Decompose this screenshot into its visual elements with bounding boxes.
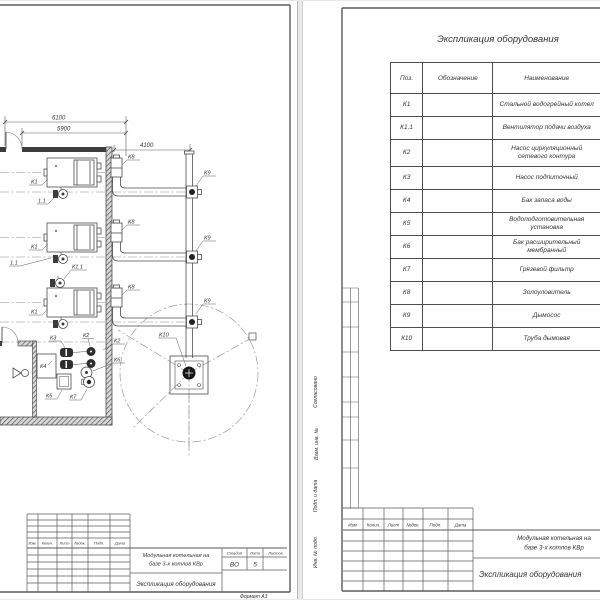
plan-drawing: 6100 5900 4100 [0, 1, 298, 599]
cell-pos: К2 [391, 140, 423, 167]
table-row: К5Водоподготовительная установка [391, 213, 600, 236]
label-ash-1: К8 [128, 155, 135, 161]
cell-name: Бак запаса воды [493, 190, 600, 213]
guy-anchor [249, 333, 256, 340]
table-row: К8Золоуловитель [391, 282, 600, 305]
stamp-col-ndok: №док. [74, 542, 85, 546]
cell-pos: К1 [391, 94, 423, 117]
stamp-col-podp: Подп. [94, 542, 104, 546]
format-note: Формат А3 [240, 594, 268, 599]
flue-run-2 [111, 220, 202, 263]
cell-designation [423, 236, 493, 259]
label-fan-3: К1.1 [72, 265, 83, 271]
label-ash-3: К8 [128, 285, 135, 291]
dim-overall-width: 6100 [52, 116, 66, 122]
table-row: К4Бак запаса воды [391, 190, 600, 213]
cell-designation [423, 259, 493, 282]
cell-pos: К6 [391, 236, 423, 259]
table-row: К7Грязевой фильтр [391, 259, 600, 282]
label-ash-2: К8 [128, 220, 135, 226]
stamp-col-data: Дата [114, 542, 125, 546]
doc-title: Экспликация оборудования [136, 581, 216, 588]
margin-label-sign-date: Подп. и дата [313, 480, 319, 513]
table-row: К2Насос циркуляционный сетевого контура [391, 140, 600, 167]
cell-designation [423, 190, 493, 213]
cell-name: Вентилятор подачи воздуха [493, 117, 600, 140]
cell-designation [423, 282, 493, 305]
cell-pos: К1.1 [391, 117, 423, 140]
sheet-number: 5 [253, 562, 257, 569]
boiler-2-fan-symbol [53, 252, 68, 264]
label-feed-pump: К3 [50, 336, 57, 342]
label-boiler-2: К1 [31, 245, 38, 251]
label-network-pump-2: К2 [114, 339, 120, 345]
stamp-col-list: Лист [387, 523, 400, 528]
cell-pos: К10 [391, 328, 423, 351]
project-title-line1: Модульная котельная на [143, 553, 210, 559]
cell-pos: К8 [391, 282, 423, 305]
cell-name: Дымосос [493, 305, 600, 328]
label-chimney: К10 [159, 333, 170, 339]
cell-pos: К4 [391, 190, 423, 213]
label-fan-2: 1.1 [10, 261, 18, 267]
project-title-line1: Модульная котельная на [517, 535, 591, 542]
table-row: К10Труба дымовая [391, 328, 600, 351]
spare-fan-symbol [53, 317, 68, 329]
table-header-row: Поз. Обозначение Наименование [391, 63, 600, 94]
stage-label: Стадия [227, 551, 243, 556]
dim-inner-width: 5900 [57, 127, 71, 133]
cell-name: Насос подпиточный [493, 167, 600, 190]
stamp-col-izm: Изм. [28, 542, 36, 546]
sheets-label: Листов [267, 551, 283, 556]
sheet-frame [0, 5, 290, 592]
cell-name: Насос циркуляционный сетевого контура [493, 140, 600, 167]
boiler-1-symbol [44, 158, 101, 187]
margin-label-inv: Инв. № подл. [313, 536, 319, 568]
project-title-line2: базе 3-х котлов КВр [524, 545, 584, 552]
stamp-col-data: Дата [454, 523, 467, 528]
margin-cells [342, 288, 359, 508]
equipment-table: Поз. Обозначение Наименование К1Стальной… [390, 62, 600, 351]
label-boiler-3: К1 [31, 310, 38, 316]
chimney-foundation [170, 356, 208, 394]
cell-pos: К3 [391, 167, 423, 190]
specification-title: Экспликация оборудования [390, 34, 600, 45]
stamp-col-izm: Изм. [348, 523, 358, 528]
table-row: К9Дымосос [391, 305, 600, 328]
equipment-table-body: К1Стальной водогрейный котел К1.1Вентиля… [391, 94, 600, 351]
margin-label-replace: Взам. инв. № [314, 428, 320, 460]
margin-labels: Согласовано Взам. инв. № Подп. и дата Ин… [313, 376, 320, 568]
label-fan-1: 1.1 [38, 199, 46, 205]
stamp-col-kolich: Колич. [42, 542, 54, 546]
label-exhauster-3: К9 [204, 299, 211, 305]
label-exhauster-1: К9 [204, 171, 211, 177]
boiler-3-fan-symbol [50, 276, 65, 288]
cell-designation [423, 305, 493, 328]
table-row: К1.1Вентилятор подачи воздуха [391, 117, 600, 140]
project-title-line2: базе 3-х котлов КВр [149, 562, 203, 568]
cell-designation [423, 94, 493, 117]
cell-pos: К9 [391, 305, 423, 328]
sheet-plan: 6100 5900 4100 [0, 1, 298, 599]
boiler-2-symbol [44, 223, 101, 252]
equipment-room [13, 347, 96, 389]
label-water-tank: К4 [40, 364, 46, 370]
cell-name: Водоподготовительная установка [493, 213, 600, 236]
label-water-treatment: К5 [46, 394, 53, 400]
cell-designation [423, 167, 493, 190]
cell-name: Бак расширительный мембранный [493, 236, 600, 259]
col-header-pos: Поз. [391, 63, 423, 94]
cell-name: Стальной водогрейный котел [493, 94, 600, 117]
dim-flue-offset: 4100 [140, 143, 154, 149]
cell-designation [423, 328, 493, 351]
room-door-arc [2, 327, 18, 343]
cell-name: Труба дымовая [493, 328, 600, 351]
label-boiler-1: К1 [31, 180, 38, 186]
doc-title: Экспликация оборудования [479, 570, 582, 579]
cell-pos: К7 [391, 259, 423, 282]
cell-pos: К5 [391, 213, 423, 236]
flue-run-3 [111, 285, 202, 328]
cell-designation [423, 117, 493, 140]
table-row: К6Бак расширительный мембранный [391, 236, 600, 259]
entry-door-arc [6, 132, 22, 149]
sheet-specification: Согласовано Взам. инв. № Подп. и дата Ин… [302, 1, 600, 599]
label-expansion-tank: К6 [114, 358, 121, 364]
cell-designation [423, 213, 493, 236]
col-header-name: Наименование [493, 63, 600, 94]
stamp-col-podp: Подп. [430, 523, 442, 528]
drawing-workspace: 6100 5900 4100 [0, 0, 600, 600]
label-mud-filter: К7 [70, 395, 77, 401]
sheet-label: Лист [249, 551, 261, 556]
stage-value: ВО [230, 562, 239, 569]
col-header-designation: Обозначение [423, 63, 493, 94]
table-row: К1Стальной водогрейный котел [391, 94, 600, 117]
label-network-pump: К2 [83, 333, 89, 339]
cell-designation [423, 140, 493, 167]
stamp-col-list: Лист [59, 542, 70, 546]
stamp-col-ndok: №док. [406, 523, 419, 528]
cell-name: Золоуловитель [493, 282, 600, 305]
stamp-col-kolich: Колич. [367, 523, 381, 528]
label-exhauster-2: К9 [204, 236, 211, 242]
table-row: К3Насос подпиточный [391, 167, 600, 190]
cell-name: Грязевой фильтр [493, 259, 600, 282]
flue-run-1 [111, 155, 202, 198]
margin-label-approved: Согласовано [313, 376, 319, 408]
boiler-3-symbol [44, 288, 101, 317]
drain-symbol [13, 368, 21, 378]
